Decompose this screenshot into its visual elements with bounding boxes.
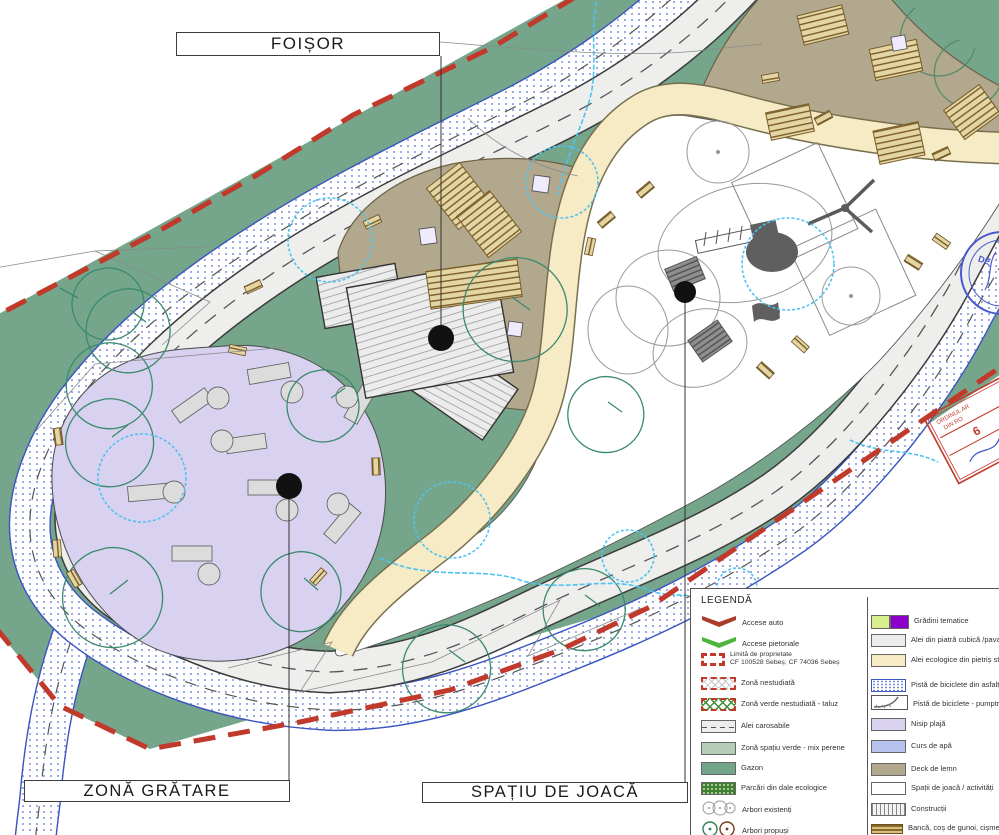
foisor-marker [428,325,454,351]
car-access-arrow-icon [701,615,737,633]
legend-item-banca: Bancă, coș de gunoi, cișmea [871,820,999,835]
legend-item-alei-ecologice: Alei ecologice din pietriș stabilizat [871,652,999,669]
legend-item-gradini-tematice: Grădini tematice [871,613,999,630]
sand-swatch-icon [871,718,906,731]
deck-swatch-icon [871,763,906,776]
bench-swatch-icon [871,824,903,834]
legend-item-nisip: Nisip plajă [871,716,999,733]
road-swatch-icon [701,720,736,733]
legend-divider [867,597,868,835]
label-foisor: FOIȘOR [176,32,440,56]
theme-gardens-swatch-icon [871,615,909,629]
legend-item-zona-nestudiata: Zonă nestudiată [701,675,865,692]
label-spatiu-de-joaca: SPAȚIU DE JOACĂ [422,782,688,803]
legend-item-arbori-propusi: Arbori propuși [701,823,865,835]
legend-panel: LEGENDĂ Accese auto Accese pietonale Lim… [690,588,999,835]
buildings-swatch-icon [871,803,906,816]
legend-item-pumptrack: Pistă de biciclete - pumptruck [871,696,999,713]
gratare-marker [276,473,302,499]
legend-item-parcari: Parcări din dale ecologice [701,780,865,797]
water-swatch-icon [871,740,906,753]
proposed-trees-icon [701,821,737,835]
pumptrack-swatch-icon [871,695,908,715]
legend-item-constructii: Construcții [871,801,999,818]
legend-item-curs-apa: Curs de apă [871,738,999,755]
legend-item-zona-verde-taluz: Zonă verde nestudiată - taluz [701,696,865,713]
legend-item-accese-auto: Accese auto [701,615,865,632]
play-area-swatch-icon [871,782,906,795]
legend-title: LEGENDĂ [701,595,752,606]
eco-path-swatch-icon [871,654,906,667]
green-slope-zone-icon [701,698,736,711]
legend-item-deck: Deck de lemn [871,761,999,778]
joaca-marker [674,281,696,303]
bike-path-swatch-icon [871,679,906,692]
legend-item-limita: Limită de proprietate CF 100528 Sebeș; C… [701,649,865,669]
legend-item-pista-asfalt: Pistă de biciclete din asfalt [871,677,999,694]
perennial-green-swatch-icon [701,742,736,755]
legend-item-alei-carosabile: Alei carosabile [701,718,865,735]
site-plan-page: DE ORDINUL AR DIN RO 6 FOIȘOR ZONĂ GRĂTA… [0,0,999,835]
legend-item-arbori-existenti: Arbori existenți [701,802,865,819]
property-limit-icon [701,653,725,666]
legend-item-spatii-joaca: Spații de joacă / activități [871,780,999,797]
legend-item-gazon: Gazon [701,760,865,777]
legend-item-mix-perene: Zonă spațiu verde - mix perene [701,740,865,757]
lawn-swatch-icon [701,762,736,775]
existing-trees-icon [701,800,737,821]
unstudied-zone-icon [701,677,736,690]
stone-path-swatch-icon [871,634,906,647]
eco-parking-swatch-icon [701,782,736,795]
legend-item-alei-piatra: Alei din piatră cubică /pavaj [871,632,999,649]
label-zona-gratare: ZONĂ GRĂTARE [24,780,290,802]
